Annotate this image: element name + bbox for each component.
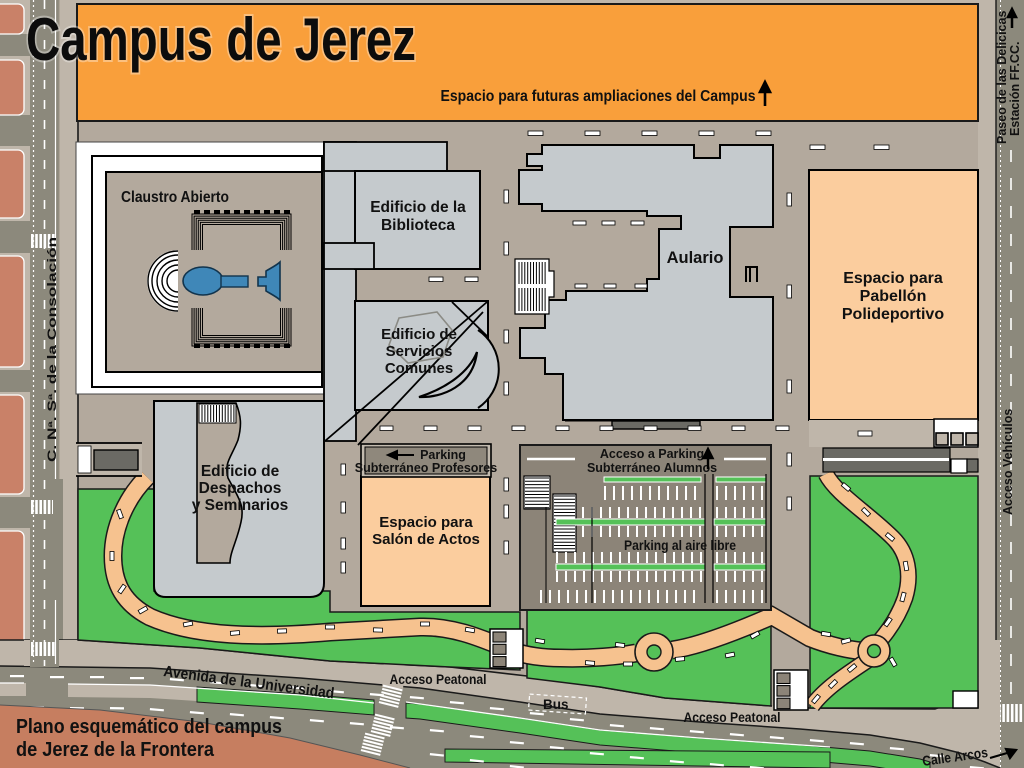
- svg-text:Aulario: Aulario: [667, 249, 724, 267]
- svg-text:Acceso Peatonal: Acceso Peatonal: [684, 710, 781, 725]
- svg-text:Parking: Parking: [420, 448, 466, 462]
- svg-text:Despachos: Despachos: [199, 480, 282, 497]
- svg-text:Pabellón: Pabellón: [860, 288, 927, 305]
- svg-text:Edificio de: Edificio de: [381, 326, 457, 343]
- svg-text:Salón de Actos: Salón de Actos: [372, 531, 480, 548]
- svg-text:Campus de Jerez: Campus de Jerez: [26, 6, 416, 73]
- svg-text:Espacio para futuras ampliacio: Espacio para futuras ampliaciones del Ca…: [441, 88, 756, 105]
- svg-text:Subterráneo Alumnos: Subterráneo Alumnos: [587, 461, 717, 475]
- svg-text:Edificio de: Edificio de: [201, 463, 280, 480]
- svg-text:Parking al aire libre: Parking al aire libre: [624, 538, 736, 553]
- svg-text:Claustro Abierto: Claustro Abierto: [121, 189, 229, 206]
- svg-text:Acceso a Parking: Acceso a Parking: [600, 447, 704, 461]
- svg-text:Plano esquemático del campus: Plano esquemático del campus: [16, 715, 282, 738]
- svg-text:Biblioteca: Biblioteca: [381, 217, 455, 234]
- svg-text:Edificio de la: Edificio de la: [370, 199, 466, 216]
- svg-text:Servicios: Servicios: [386, 343, 453, 360]
- svg-text:Espacio para: Espacio para: [379, 514, 473, 531]
- svg-text:Comunes: Comunes: [385, 360, 453, 377]
- svg-text:Bus: Bus: [543, 697, 569, 712]
- svg-text:Subterráneo Profesores: Subterráneo Profesores: [355, 461, 497, 475]
- svg-text:Espacio para: Espacio para: [843, 270, 943, 287]
- svg-text:Acceso Peatonal: Acceso Peatonal: [390, 672, 487, 687]
- svg-text:de Jerez de la Frontera: de Jerez de la Frontera: [16, 738, 215, 761]
- svg-text:Estación FF.CC.: Estación FF.CC.: [1008, 42, 1022, 136]
- svg-text:C. Nª. Sª. de la Consolación: C. Nª. Sª. de la Consolación: [47, 237, 59, 462]
- svg-text:Acceso Vehículos: Acceso Vehículos: [1001, 409, 1015, 515]
- svg-text:y Seminarios: y Seminarios: [192, 497, 289, 514]
- svg-text:Polideportivo: Polideportivo: [842, 306, 944, 323]
- svg-text:Paseo de las Delicicas: Paseo de las Delicicas: [995, 11, 1009, 144]
